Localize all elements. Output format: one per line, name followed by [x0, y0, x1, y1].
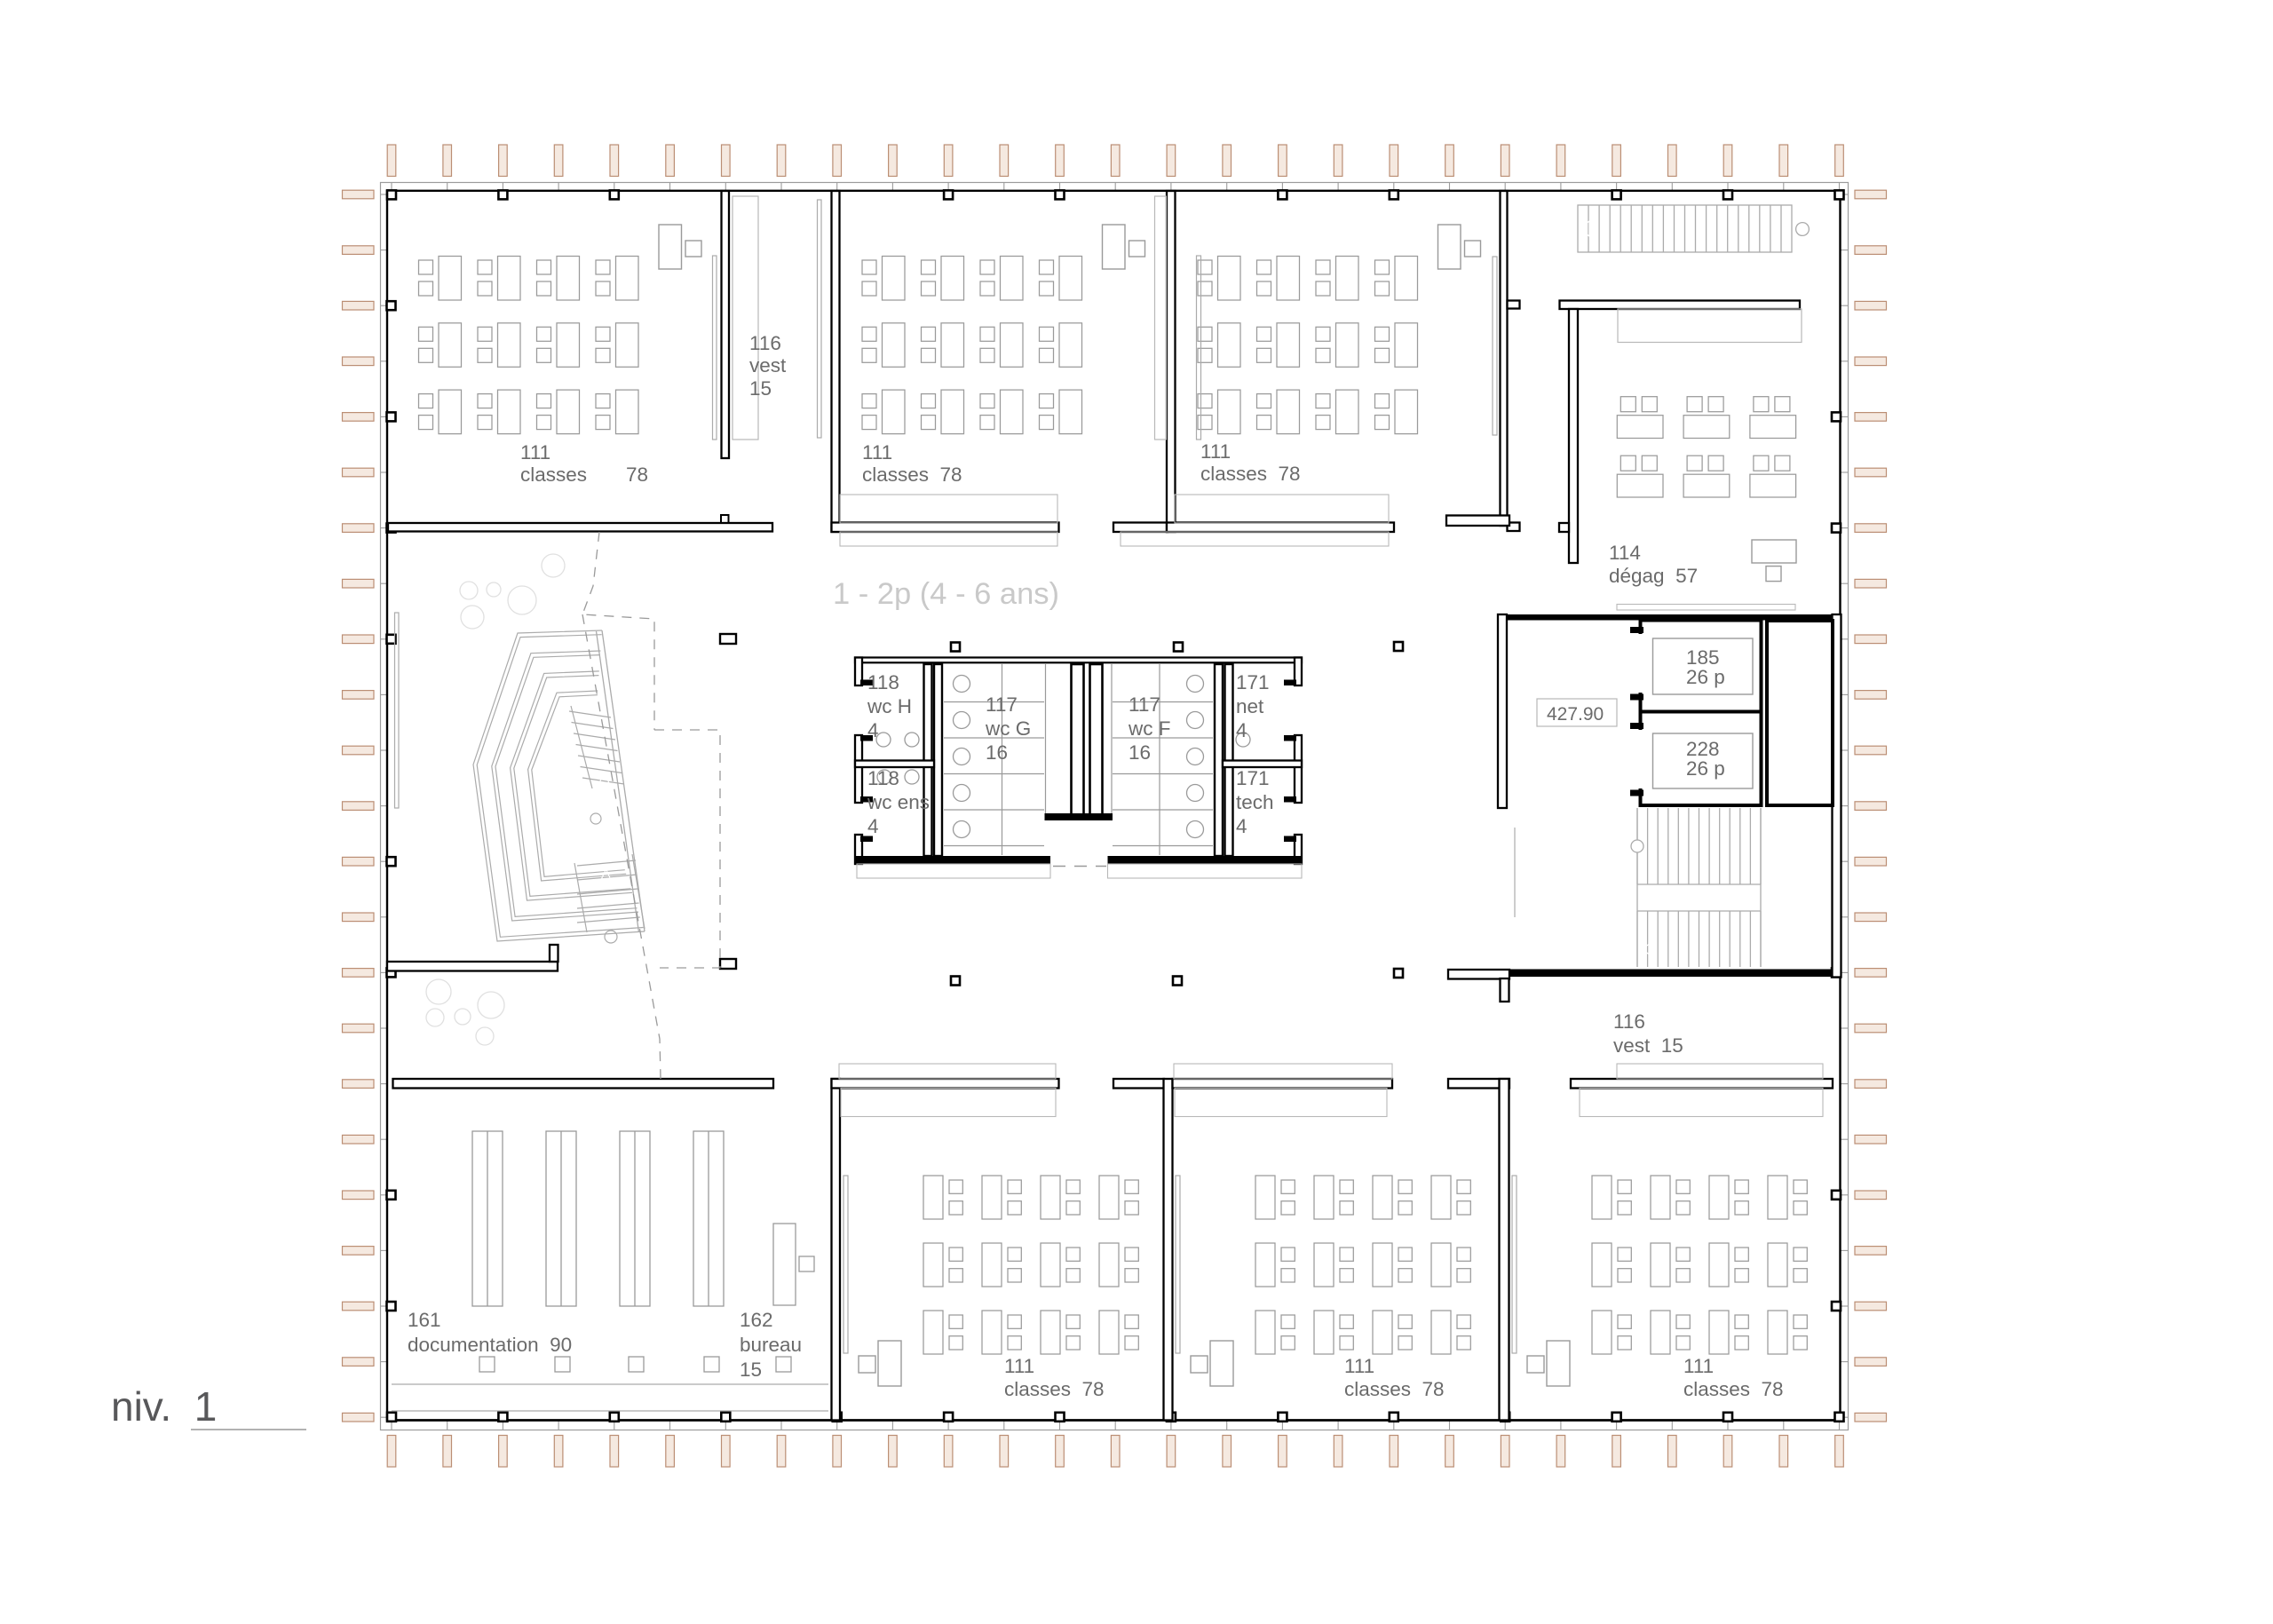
svg-text:111: 111	[1344, 1355, 1374, 1377]
svg-text:118: 118	[867, 767, 899, 789]
svg-text:26 p: 26 p	[1686, 666, 1725, 688]
svg-text:171: 171	[1236, 767, 1270, 789]
svg-text:4: 4	[867, 719, 879, 741]
svg-text:niv. 1: niv. 1	[111, 1383, 217, 1430]
svg-text:117: 117	[986, 693, 1018, 716]
svg-text:16: 16	[986, 741, 1008, 764]
svg-text:118: 118	[867, 671, 899, 693]
svg-text:classes 78: classes 78	[1200, 463, 1301, 485]
svg-text:net: net	[1236, 695, 1264, 717]
svg-text:15: 15	[749, 377, 772, 400]
svg-text:wc G: wc G	[985, 717, 1031, 740]
svg-text:111: 111	[1200, 440, 1231, 463]
svg-text:wc H: wc H	[867, 695, 912, 717]
svg-text:classes: classes	[520, 463, 587, 486]
svg-text:documentation 90: documentation 90	[408, 1334, 572, 1356]
svg-text:16: 16	[1129, 741, 1151, 764]
svg-text:162: 162	[740, 1309, 773, 1331]
svg-text:dégag 57: dégag 57	[1609, 565, 1698, 587]
svg-text:78: 78	[626, 463, 648, 486]
svg-text:classes 78: classes 78	[1683, 1378, 1784, 1400]
svg-text:4: 4	[1236, 719, 1247, 741]
svg-text:114: 114	[1609, 542, 1641, 564]
svg-text:classes 78: classes 78	[1344, 1378, 1445, 1400]
svg-text:classes 78: classes 78	[1004, 1378, 1105, 1400]
svg-text:15: 15	[740, 1359, 762, 1381]
svg-text:161: 161	[408, 1309, 441, 1331]
svg-text:171: 171	[1236, 671, 1270, 693]
svg-text:1 - 2p (4 - 6 ans): 1 - 2p (4 - 6 ans)	[833, 577, 1059, 611]
svg-text:wc ens: wc ens	[867, 791, 930, 813]
svg-text:111: 111	[1683, 1355, 1714, 1377]
svg-text:26 p: 26 p	[1686, 757, 1725, 780]
svg-text:116: 116	[1613, 1010, 1645, 1033]
svg-text:vest: vest	[749, 354, 787, 376]
svg-text:116: 116	[749, 332, 781, 354]
svg-text:117: 117	[1129, 693, 1160, 716]
svg-text:bureau: bureau	[740, 1334, 802, 1356]
svg-text:vest 15: vest 15	[1613, 1034, 1683, 1057]
svg-text:tech: tech	[1236, 791, 1274, 813]
svg-text:wc F: wc F	[1128, 717, 1171, 740]
svg-text:427.90: 427.90	[1547, 704, 1604, 725]
svg-text:111: 111	[520, 441, 550, 463]
svg-text:4: 4	[1236, 815, 1247, 837]
svg-text:111: 111	[1004, 1355, 1034, 1377]
svg-text:111: 111	[862, 441, 892, 463]
svg-text:classes 78: classes 78	[862, 463, 962, 486]
svg-text:4: 4	[867, 815, 879, 837]
